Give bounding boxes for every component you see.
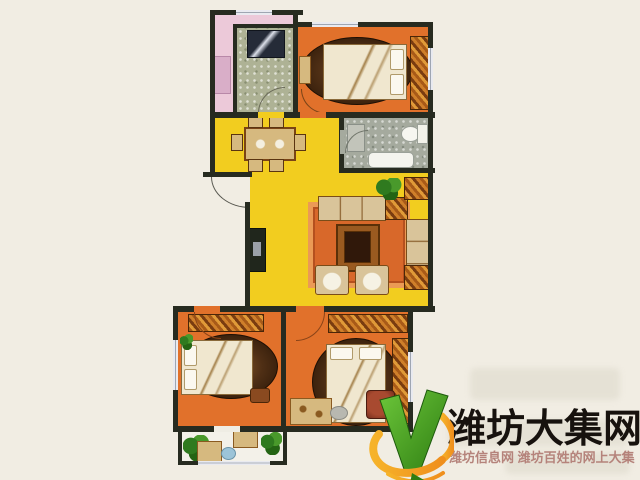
wall (210, 112, 215, 176)
pillow (184, 369, 197, 390)
wall (281, 306, 286, 432)
dining-chair (269, 159, 284, 172)
logo-v-icon (366, 388, 454, 480)
wall (293, 10, 298, 116)
plant-icon (261, 432, 282, 455)
balcony-table (197, 441, 222, 462)
wall (283, 426, 287, 465)
plant-icon (180, 334, 193, 350)
dining-chair (294, 134, 306, 151)
utility-shelf (214, 56, 231, 94)
toilet-tank (417, 124, 428, 144)
swoosh-back (442, 416, 453, 460)
door-opening (300, 112, 326, 118)
coffee-table-top (344, 231, 371, 263)
pillow (390, 74, 404, 95)
master-bed (323, 44, 407, 100)
window (236, 10, 272, 15)
window (312, 22, 358, 27)
window (198, 461, 270, 465)
wall (233, 24, 295, 28)
door-opening (296, 306, 324, 312)
master-wardrobe (410, 36, 429, 110)
door-opening (194, 306, 220, 312)
door-opening (340, 130, 344, 154)
wash-basin (221, 447, 236, 460)
wall (245, 202, 250, 310)
site-tagline: 潍坊信息网 潍坊百姓的网上大集 (449, 447, 635, 466)
armchair (315, 265, 349, 295)
dining-chair (248, 159, 263, 172)
side-table (404, 265, 429, 290)
tv-screen (253, 242, 261, 256)
pillow (330, 347, 353, 360)
wall (178, 426, 182, 465)
balcony-chair (233, 431, 258, 448)
plant-icon (376, 178, 402, 200)
pillow (390, 49, 404, 70)
side-table (385, 197, 408, 220)
stool (250, 388, 270, 403)
corner-table (404, 177, 429, 200)
wall (210, 10, 215, 117)
bathtub (368, 152, 414, 168)
wall (339, 168, 435, 173)
window (173, 340, 178, 390)
master-dresser (299, 56, 311, 84)
floor-item (330, 406, 348, 420)
third-wardrobe (328, 314, 408, 333)
desk (290, 398, 332, 425)
pillow (359, 347, 382, 360)
listing-image: 潍坊大集网 潍坊信息网 潍坊百姓的网上大集 (0, 0, 640, 480)
dining-chair (231, 134, 243, 151)
door-opening (258, 112, 284, 118)
site-name: 潍坊大集网 (447, 398, 640, 454)
stove-counter (247, 30, 285, 58)
dining-table (244, 127, 296, 161)
wall (233, 24, 237, 114)
faint-watermark (470, 368, 620, 400)
armchair (355, 265, 389, 295)
door-opening (214, 426, 240, 432)
window (428, 48, 433, 90)
